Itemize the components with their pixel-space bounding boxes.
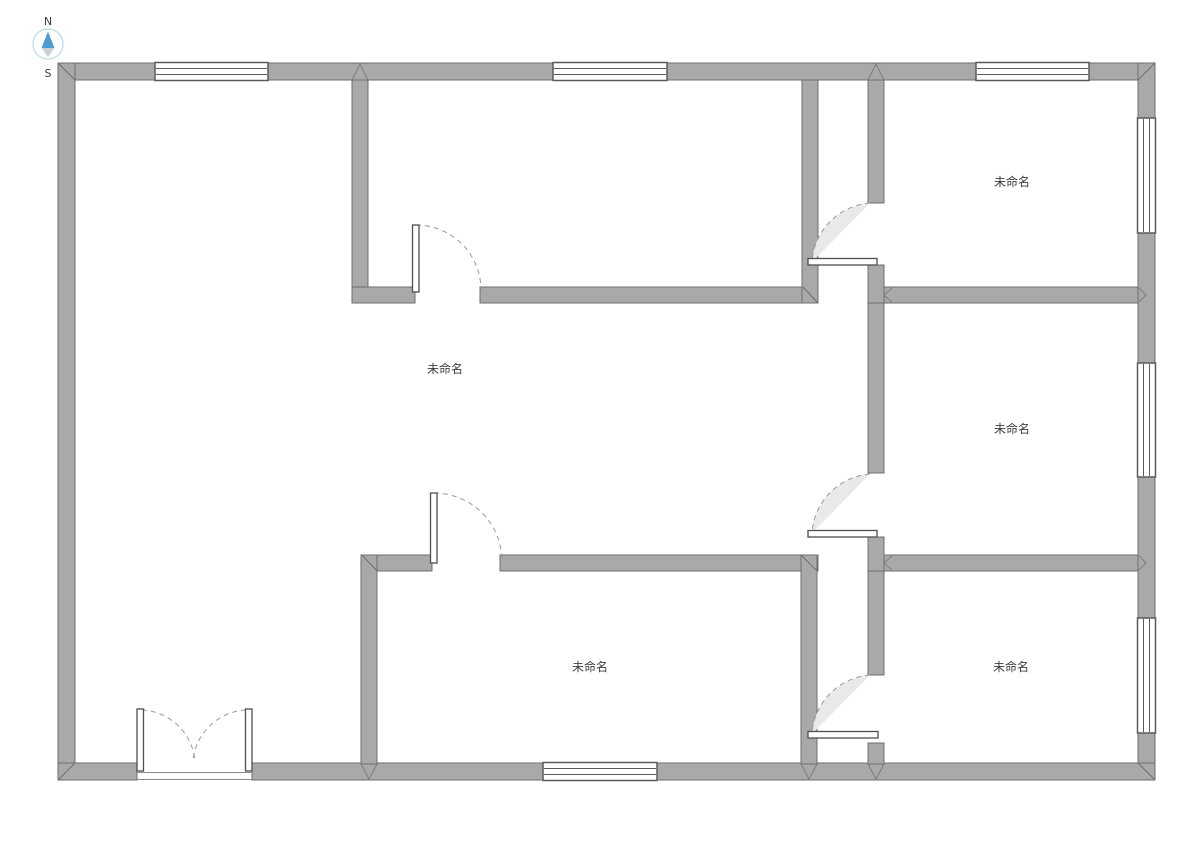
wall-interior-F-lower[interactable] bbox=[868, 537, 884, 571]
wall-interior-B-left[interactable] bbox=[352, 287, 415, 303]
wall-interior-K-upper[interactable] bbox=[868, 571, 884, 675]
floorplan-drawing: 未命名 未命名 未命名 未命名 未命名 N S bbox=[0, 0, 1191, 842]
wall-interior-A-vertical[interactable] bbox=[352, 80, 368, 303]
window-bottom[interactable] bbox=[543, 763, 657, 781]
window-top-1[interactable] bbox=[155, 63, 268, 81]
door-center-room[interactable] bbox=[431, 493, 503, 563]
wall-interior-B-right[interactable] bbox=[480, 287, 818, 303]
window-top-2[interactable] bbox=[553, 63, 667, 81]
room-label-bottom-right[interactable]: 未命名 bbox=[993, 659, 1029, 674]
compass-north-label: N bbox=[44, 15, 52, 28]
room-label-center[interactable]: 未命名 bbox=[427, 361, 463, 376]
room-labels: 未命名 未命名 未命名 未命名 未命名 bbox=[427, 174, 1030, 674]
room-label-top-right[interactable]: 未命名 bbox=[994, 174, 1030, 189]
double-door-entry[interactable] bbox=[137, 709, 252, 780]
door-top-middle-room[interactable] bbox=[413, 225, 482, 292]
window-right-bottom[interactable] bbox=[1138, 618, 1156, 733]
window-top-3[interactable] bbox=[976, 63, 1089, 81]
door-corridor-bottom[interactable] bbox=[808, 675, 878, 738]
wall-outer-bottom-main-segment[interactable] bbox=[252, 763, 1155, 780]
wall-interior-E-horizontal[interactable] bbox=[884, 287, 1138, 303]
floorplan-canvas: 未命名 未命名 未命名 未命名 未命名 N S bbox=[0, 0, 1191, 842]
wall-interior-D-lower[interactable] bbox=[868, 265, 884, 303]
wall-interior-D-stub[interactable] bbox=[868, 80, 884, 203]
wall-outer-left[interactable] bbox=[58, 63, 75, 780]
wall-interior-H-right[interactable] bbox=[884, 555, 1138, 571]
door-corridor-middle[interactable] bbox=[808, 474, 877, 537]
compass-south-label: S bbox=[45, 67, 52, 80]
wall-interior-F-upper[interactable] bbox=[868, 303, 884, 473]
window-right-middle[interactable] bbox=[1138, 363, 1156, 477]
window-right-top[interactable] bbox=[1138, 118, 1156, 233]
wall-interior-K-lower[interactable] bbox=[868, 743, 884, 764]
wall-interior-I-vertical[interactable] bbox=[361, 555, 377, 764]
wall-outer-bottom-left-segment[interactable] bbox=[58, 763, 137, 780]
wall-interior-H-left2[interactable] bbox=[500, 555, 818, 571]
room-label-bottom-middle[interactable]: 未命名 bbox=[572, 659, 608, 674]
room-label-middle-right[interactable]: 未命名 bbox=[994, 421, 1030, 436]
wall-interior-C-vertical[interactable] bbox=[802, 80, 818, 303]
